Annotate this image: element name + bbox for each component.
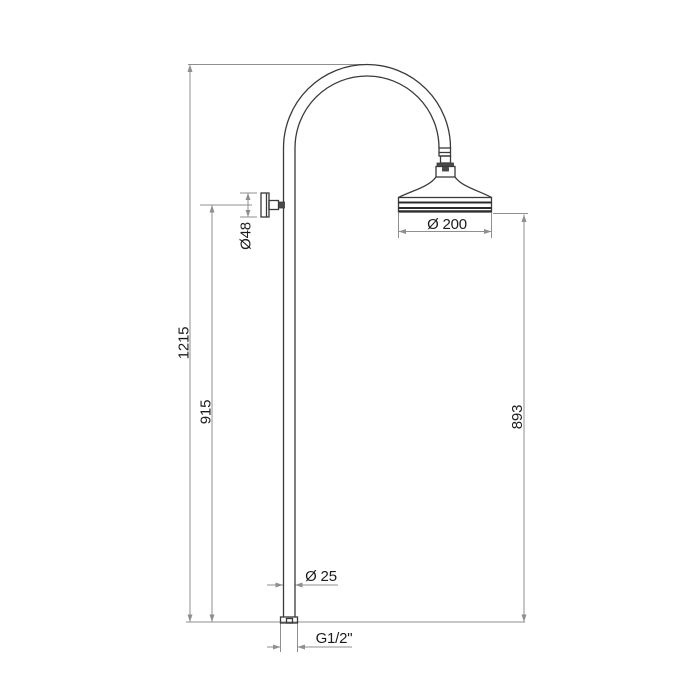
dim-total-height: 1215 (176, 65, 193, 623)
arrow-down-893 (522, 615, 527, 623)
arrow-down-1215 (188, 615, 193, 623)
connector-nut-notch (443, 168, 449, 172)
head-rim (399, 198, 492, 213)
label-head-diameter: Ø 200 (427, 216, 467, 233)
dim-head-diameter: Ø 200 (399, 213, 492, 238)
arrow-down-915 (210, 615, 215, 623)
arrow-right-200 (484, 229, 492, 234)
arrow-right-thread (273, 645, 281, 650)
head-bell-left (399, 177, 437, 198)
dim-pipe-diameter: Ø 25 (267, 568, 338, 588)
shower-head (399, 177, 492, 212)
label-pipe-diameter: Ø 25 (305, 568, 337, 585)
riser-pipe (284, 148, 296, 617)
label-head-height: 893 (509, 405, 526, 429)
bracket-flange (261, 193, 269, 217)
dim-head-height: 893 (493, 214, 528, 623)
label-bracket-diameter: Ø48 (238, 222, 255, 250)
product-drawing (261, 65, 492, 624)
arrow-up-893 (522, 215, 527, 223)
arrow-left-200 (399, 229, 407, 234)
wall-bracket (261, 193, 285, 217)
dimension-annotations: 1215 915 893 Ø48 (176, 65, 529, 653)
arrow-down-48 (246, 210, 251, 217)
head-connector (436, 148, 455, 177)
arrow-up-1215 (188, 65, 193, 73)
gooseneck-arm (284, 65, 451, 148)
bracket-stem (269, 201, 279, 210)
arrow-up-48 (246, 193, 251, 200)
label-total-height: 1215 (176, 327, 193, 360)
dim-thread-size: G1/2" (267, 623, 352, 652)
technical-drawing-page: 1215 915 893 Ø48 (0, 0, 700, 700)
dim-bracket-height: 915 (198, 205, 253, 622)
label-thread-size: G1/2" (316, 630, 353, 647)
connector-sleeve (441, 156, 451, 163)
shower-column-drawing: 1215 915 893 Ø48 (0, 0, 700, 700)
bracket-clamp-knob (279, 202, 285, 208)
label-bracket-height: 915 (198, 400, 215, 424)
arrow-left-thread (298, 645, 306, 650)
arm-inner-curve (295, 76, 439, 148)
arrow-right-25 (276, 583, 284, 588)
arrow-left-25 (295, 583, 303, 588)
head-bell-right (455, 177, 492, 198)
arrow-up-915 (210, 205, 215, 213)
dim-bracket-diameter: Ø48 (238, 193, 258, 250)
